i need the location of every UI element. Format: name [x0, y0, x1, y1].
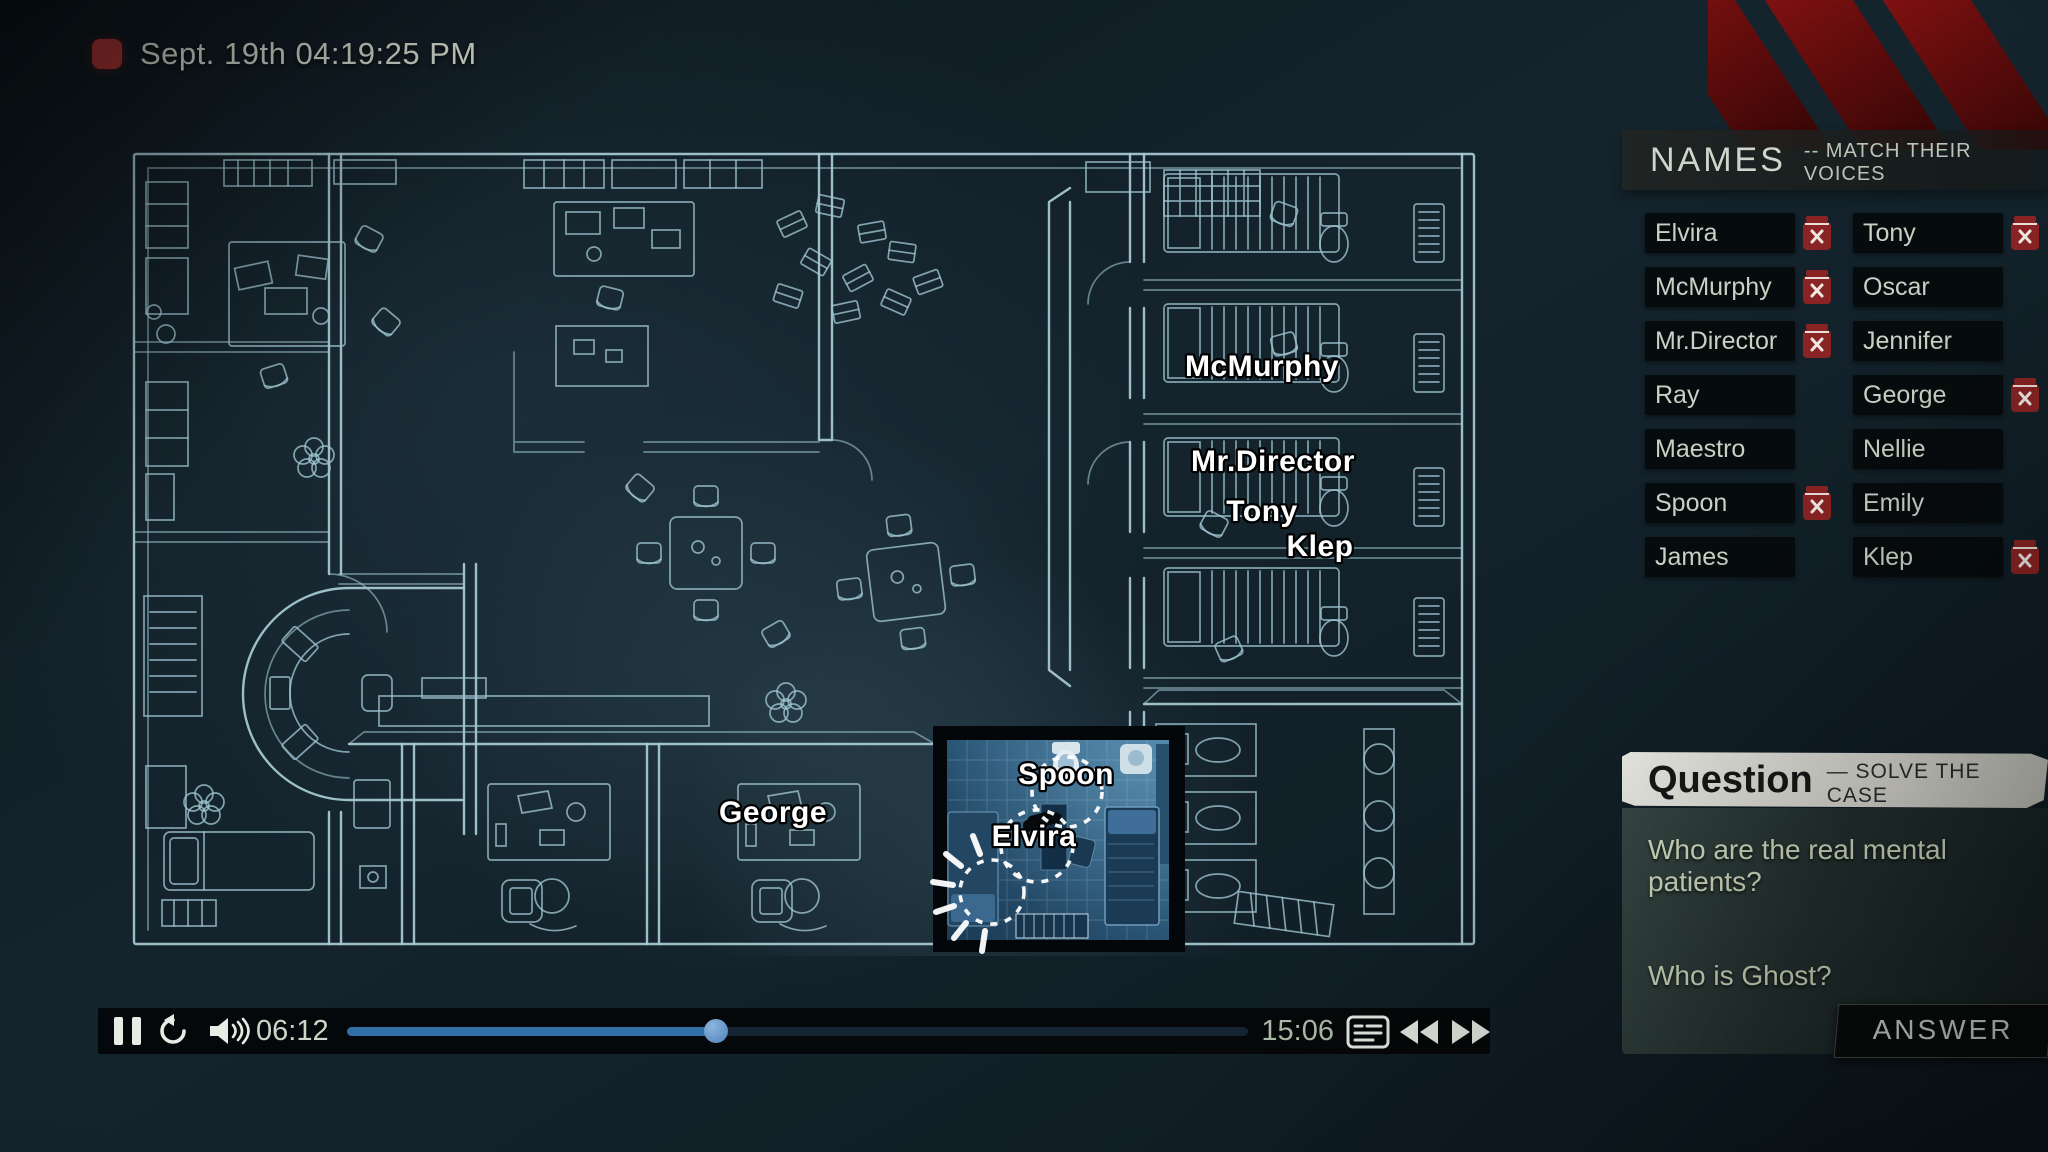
question-panel-header: Question — SOLVE THE CASE	[1622, 752, 2048, 808]
elapsed-time: 06:12	[256, 1008, 340, 1054]
delete-name-icon[interactable]	[1802, 215, 1832, 251]
map-label-klep[interactable]: Klep	[1286, 530, 1353, 563]
name-tag-mr-director[interactable]: Mr.Director	[1645, 321, 1795, 361]
recording-indicator: Sept. 19th 04:19:25 PM	[92, 36, 477, 72]
question-text-1: Who are the real mental patients?	[1648, 834, 2024, 898]
delete-name-icon[interactable]	[2010, 539, 2040, 575]
transcript-icon[interactable]	[1346, 1015, 1390, 1049]
pause-button[interactable]	[114, 1017, 141, 1045]
name-tag-jennifer[interactable]: Jennifer	[1853, 321, 2003, 361]
name-slot: Tony	[1853, 213, 2048, 253]
name-slot: Maestro	[1645, 429, 1853, 469]
name-tag-maestro[interactable]: Maestro	[1645, 429, 1795, 469]
name-slot: Jennifer	[1853, 321, 2048, 361]
rewind-icon[interactable]	[1400, 1020, 1438, 1044]
name-tag-ray[interactable]: Ray	[1645, 375, 1795, 415]
name-tag-elvira[interactable]: Elvira	[1645, 213, 1795, 253]
name-tag-spoon[interactable]: Spoon	[1645, 483, 1795, 523]
floorplan-map[interactable]: McMurphy Mr.Director Tony Klep George Sp…	[124, 144, 1484, 956]
game-screen: Sept. 19th 04:19:25 PM	[0, 0, 2048, 1152]
pause-bar	[114, 1017, 123, 1045]
record-dot-icon	[92, 39, 122, 69]
volume-icon[interactable]	[210, 1017, 250, 1045]
name-slot: Oscar	[1853, 267, 2048, 307]
name-slot: Mr.Director	[1645, 321, 1853, 361]
name-tag-tony[interactable]: Tony	[1853, 213, 2003, 253]
replay-icon[interactable]	[156, 1014, 190, 1048]
map-label-george[interactable]: George	[719, 796, 827, 829]
name-slot: Klep	[1853, 537, 2048, 577]
name-tag-klep[interactable]: Klep	[1853, 537, 2003, 577]
map-label-mr-director[interactable]: Mr.Director	[1191, 445, 1355, 478]
name-tag-nellie[interactable]: Nellie	[1853, 429, 2003, 469]
question-panel-subtitle: — SOLVE THE CASE	[1827, 752, 2048, 808]
name-slot: George	[1853, 375, 2048, 415]
delete-name-icon[interactable]	[2010, 215, 2040, 251]
progress-fill	[347, 1027, 716, 1036]
name-tag-james[interactable]: James	[1645, 537, 1795, 577]
question-text-2: Who is Ghost?	[1648, 960, 2024, 992]
delete-name-icon[interactable]	[2010, 377, 2040, 413]
answer-button[interactable]: ANSWER	[1834, 1004, 2048, 1058]
question-panel-title: Question	[1648, 759, 1813, 802]
audio-player-bar: 06:12 15:06	[98, 1008, 1490, 1054]
map-label-spoon[interactable]: Spoon	[1018, 758, 1114, 791]
delete-name-icon[interactable]	[1802, 485, 1832, 521]
names-panel-header: NAMES -- MATCH THEIR VOICES	[1622, 130, 2048, 190]
pause-bar	[132, 1017, 141, 1045]
total-time: 15:06	[1256, 1008, 1334, 1054]
name-slot: Nellie	[1853, 429, 2048, 469]
map-label-elvira[interactable]: Elvira	[992, 820, 1077, 853]
name-slot: Elvira	[1645, 213, 1853, 253]
names-grid: Elvira Tony McMurphy Oscar Mr.Director J…	[1645, 213, 2048, 577]
names-panel-subtitle: -- MATCH THEIR VOICES	[1804, 134, 2048, 186]
names-panel-title: NAMES	[1650, 141, 1786, 180]
progress-track[interactable]	[347, 1027, 1248, 1036]
name-slot: Emily	[1853, 483, 2048, 523]
corner-stripes-decoration	[1708, 0, 2048, 150]
delete-name-icon[interactable]	[1802, 269, 1832, 305]
name-slot: McMurphy	[1645, 267, 1853, 307]
name-tag-emily[interactable]: Emily	[1853, 483, 2003, 523]
map-label-mcmurphy[interactable]: McMurphy	[1185, 350, 1339, 383]
delete-name-icon[interactable]	[1802, 323, 1832, 359]
progress-knob[interactable]	[704, 1019, 728, 1043]
fast-forward-icon[interactable]	[1452, 1020, 1490, 1044]
name-slot: Spoon	[1645, 483, 1853, 523]
answer-button-label: ANSWER	[1837, 1005, 2048, 1055]
name-tag-george[interactable]: George	[1853, 375, 2003, 415]
name-tag-mcmurphy[interactable]: McMurphy	[1645, 267, 1795, 307]
names-panel: NAMES -- MATCH THEIR VOICES Elvira Tony …	[1622, 130, 2048, 577]
name-slot: James	[1645, 537, 1853, 577]
name-tag-oscar[interactable]: Oscar	[1853, 267, 2003, 307]
recording-timestamp: Sept. 19th 04:19:25 PM	[140, 36, 477, 72]
map-label-tony[interactable]: Tony	[1226, 495, 1297, 528]
name-slot: Ray	[1645, 375, 1853, 415]
